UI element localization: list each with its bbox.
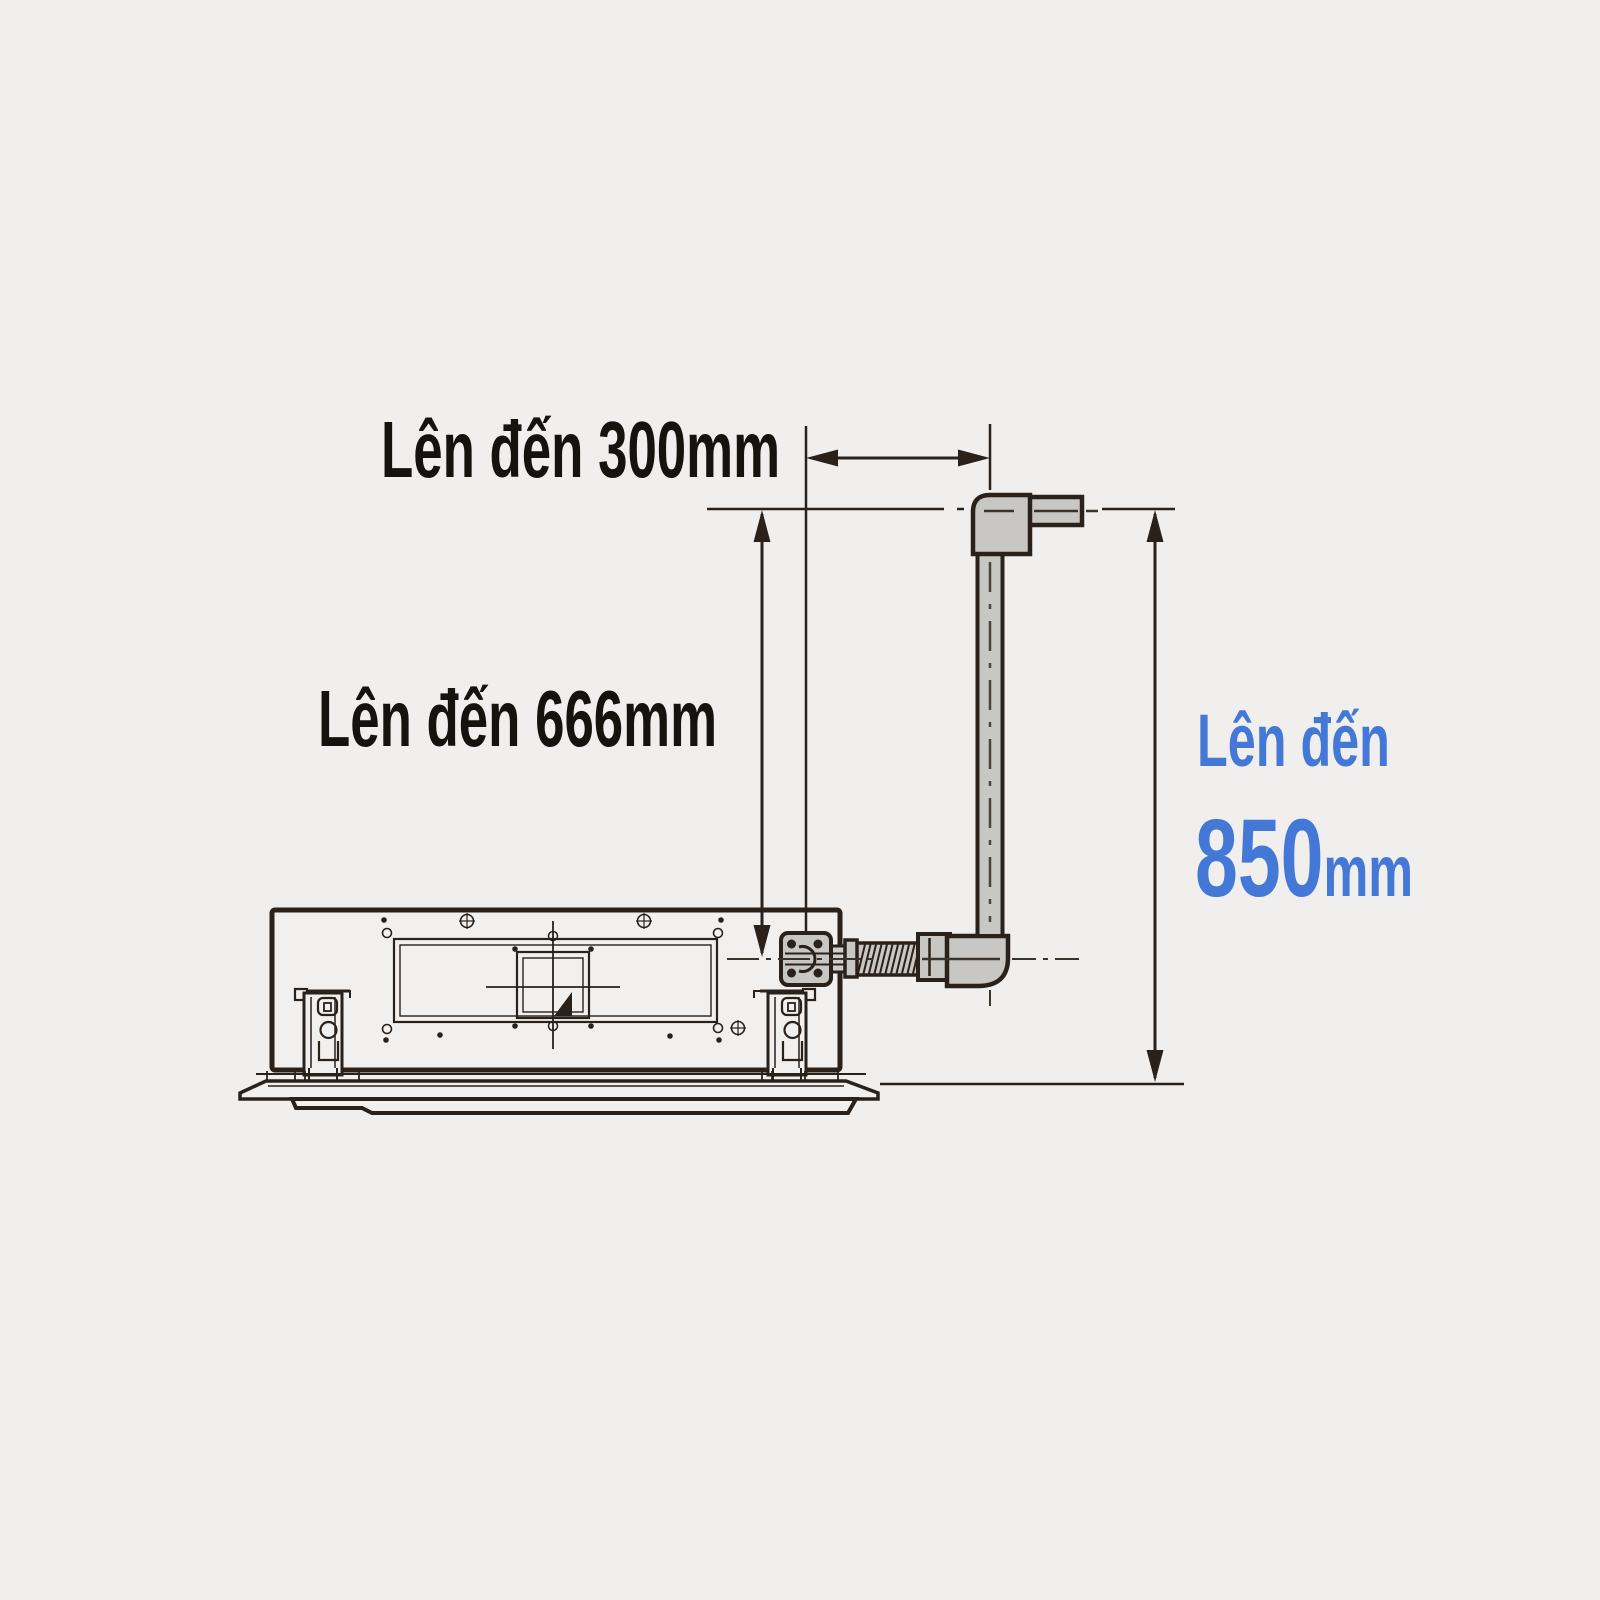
dimension-label-850mm-prefix: Lên đến [1197, 704, 1390, 778]
dimension-label-850mm-value: 850mm [1195, 804, 1413, 914]
diagram-canvas: Lên đến 300mm Lên đến 666mm Lên đến 850m… [0, 0, 1600, 1600]
dimension-850-unit: mm [1323, 832, 1413, 912]
dimension-850-number: 850 [1195, 797, 1323, 920]
drawing [0, 0, 1600, 1600]
dimension-label-666mm: Lên đến 666mm [318, 679, 717, 759]
elbow-top [973, 495, 1030, 554]
arrowhead-right [958, 450, 990, 467]
ceiling-panel [240, 1071, 878, 1113]
elbow-bottom [947, 936, 1008, 986]
panel-lip [292, 1099, 856, 1113]
arrowhead-up [1147, 510, 1164, 542]
dimension-label-300mm: Lên đến 300mm [381, 410, 780, 490]
arrowhead-up [754, 510, 771, 542]
dimension-850 [1147, 510, 1164, 1082]
dimension-300 [806, 450, 990, 467]
panel-frame [240, 1081, 878, 1099]
dimension-666 [754, 510, 771, 957]
arrowhead-down [1147, 1050, 1164, 1082]
hanger-bracket-left [295, 989, 350, 1080]
arrowhead-left [806, 450, 838, 467]
